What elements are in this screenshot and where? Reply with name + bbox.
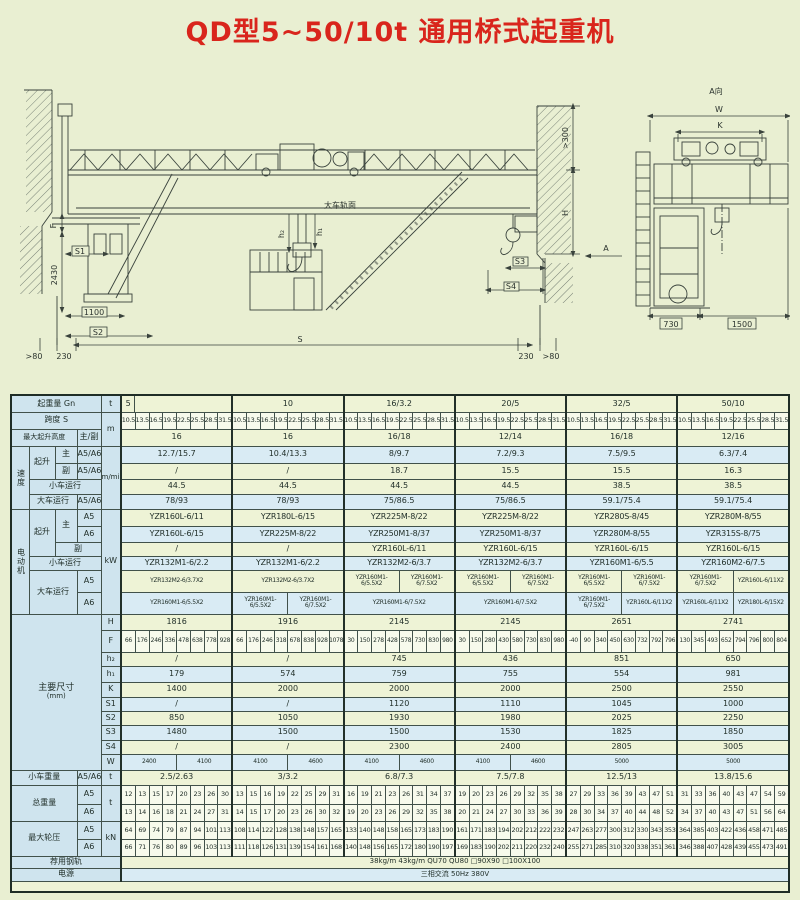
sub-cell: 800 <box>761 631 775 652</box>
value-cell: / <box>121 463 232 479</box>
end-view-dimensions <box>650 116 788 329</box>
value-cell: 7.5/7.8 <box>455 770 566 785</box>
value-cell: 1825 <box>566 725 677 740</box>
sub-cell: 422 <box>720 822 734 839</box>
sub-row: YZR160M1-6/5.5X2YZR160M1-6/7.5X2 <box>567 571 676 592</box>
row-sublabel: A6 <box>77 526 101 542</box>
sub-cell: 16.5 <box>483 413 497 429</box>
sub-row: 41004600 <box>456 755 565 770</box>
value-cell: 59.1/75.4 <box>566 494 677 509</box>
row-sublabel: A5 <box>77 785 101 804</box>
value-cell: 10.513.516.519.522.525.528.531.5 <box>677 412 789 429</box>
sub-cell: 428 <box>720 840 734 856</box>
value-cell: 1480 <box>121 725 232 740</box>
value-cell: 1816 <box>121 614 232 630</box>
sub-cell: 40 <box>622 805 636 821</box>
value-cell: 2500 <box>566 682 677 697</box>
value-cell: YZR132M1-6/2.2 <box>232 556 343 570</box>
spec-sheet-page: QD型5~50/10t 通用桥式起重机 <box>0 0 800 900</box>
sub-row: 169183190202211220232240 <box>456 840 565 856</box>
sub-cell: 240 <box>552 840 565 856</box>
value-cell: 161171183194202212222232 <box>455 821 566 839</box>
sub-cell: 111 <box>233 840 247 856</box>
sub-cell: 19.5 <box>720 413 734 429</box>
row-sublabel: A6 <box>77 839 101 856</box>
sub-cell: 25.5 <box>525 413 539 429</box>
sub-cell: 194 <box>497 822 511 839</box>
sub-row: 10.513.516.519.522.525.528.531.5 <box>345 413 454 429</box>
row-label: 起重量 Gn <box>11 395 101 412</box>
value-cell: YZR160M1-6/5.5X2YZR160M1-6/7.5X2 <box>232 592 343 614</box>
sub-cell: 246 <box>150 631 164 652</box>
unit-label: t <box>101 785 121 821</box>
sub-row: YZR132M2-6/3.7X2 <box>122 571 231 592</box>
sub-cell: 652 <box>720 631 734 652</box>
end-view-labels: A向 W K 730 1500 <box>663 86 752 329</box>
sub-cell: 4600 <box>511 755 565 770</box>
value-cell: 2741 <box>677 614 789 630</box>
value-cell: 2400 <box>455 740 566 754</box>
unit-label: t <box>101 770 121 785</box>
row-sublabel: A5 <box>77 821 101 839</box>
sub-cell: YZR160M1-6/7.5X2 <box>567 593 622 614</box>
sub-cell: 10.5 <box>678 413 692 429</box>
sub-cell: YZR160L-6/11X2 <box>734 571 788 592</box>
value-cell: YZR160M2-6/7.5 <box>677 556 789 570</box>
sub-cell: 28.5 <box>316 413 330 429</box>
sub-cell: 22.5 <box>511 413 525 429</box>
sub-row: YZR160M1-6/5.5X2YZR160M1-6/7.5X2 <box>345 571 454 592</box>
sub-cell: 29 <box>511 786 525 804</box>
value-cell: YZR160M1-6/5.5X2YZR160M1-6/7.5X2 <box>566 570 677 592</box>
value-cell: 66176246336478638778928 <box>121 630 232 652</box>
sub-cell: 31.5 <box>663 413 676 429</box>
row-label: 小车运行 <box>29 556 101 570</box>
value-cell: YZR250M1-8/37 <box>455 526 566 542</box>
sub-cell: YZR160M1-6/5.5X2 <box>233 593 288 614</box>
row-sublabel: 副 <box>55 463 77 479</box>
row-label: 荐用钢轨 <box>11 856 121 868</box>
row-sublabel: A5/A6 <box>77 494 101 509</box>
unit-label: m/min <box>101 446 121 509</box>
dim-row-label: F <box>101 630 121 652</box>
sub-cell: 22.5 <box>177 413 191 429</box>
sub-cell: 156 <box>372 840 386 856</box>
value-cell: 5 <box>121 395 135 412</box>
row-sublabel: A5/A6 <box>77 446 101 463</box>
value-cell: / <box>232 542 343 556</box>
value-cell: YZR225M-8/22 <box>344 509 455 526</box>
sub-row: YZR160M1-6/7.5X2 <box>456 593 565 614</box>
value-cell: YZR132M2-6/3.7X2 <box>232 570 343 592</box>
sub-cell: -40 <box>567 631 581 652</box>
row-sublabel: A5/A6 <box>77 770 101 785</box>
value-cell: 2250 <box>677 711 789 725</box>
sub-cell: 678 <box>288 631 302 652</box>
sub-cell: 64 <box>775 805 788 821</box>
value-cell: 130345493652794796800804 <box>677 630 789 652</box>
value-cell: 574 <box>232 666 343 682</box>
sub-cell: 190 <box>483 840 497 856</box>
sub-cell: 27 <box>205 805 219 821</box>
value-cell: 10.513.516.519.522.525.528.531.5 <box>344 412 455 429</box>
row-sublabel: A5 <box>77 570 101 592</box>
value-cell: 16 <box>232 429 343 446</box>
sub-cell: 1078 <box>330 631 343 652</box>
unit-label: m <box>101 412 121 446</box>
value-cell: 3437404347515664 <box>677 804 789 821</box>
value-cell: 1619212326313437 <box>344 785 455 804</box>
value-cell: 18.7 <box>344 463 455 479</box>
sub-cell: 17 <box>261 805 275 821</box>
value-cell: / <box>121 542 232 556</box>
dim-h2-label: h₂ <box>277 230 286 238</box>
sub-cell: 485 <box>775 822 788 839</box>
sub-cell: 318 <box>275 631 289 652</box>
sub-cell: 25.5 <box>413 413 427 429</box>
sub-row: 364385403422436458471485 <box>678 822 788 839</box>
sub-cell: 43 <box>720 805 734 821</box>
sub-row: 667176808996103113 <box>122 840 231 856</box>
value-cell: YZR160M1-6/5.5X2 <box>121 592 232 614</box>
sub-cell: 140 <box>358 822 372 839</box>
value-cell: YZR160M1-6/5.5X2YZR160M1-6/7.5X2 <box>455 570 566 592</box>
sub-cell: 16 <box>150 805 164 821</box>
sub-cell: 450 <box>608 631 622 652</box>
sub-cell: 255 <box>567 840 581 856</box>
sub-row: 1213151720232630 <box>122 786 231 804</box>
value-cell: 10.513.516.519.522.525.528.531.5 <box>566 412 677 429</box>
sub-cell: 5000 <box>678 755 788 770</box>
value-cell: 247263277300312330343353 <box>566 821 677 839</box>
dim-h2-row: h₂ / / 745 436 851 650 <box>11 652 789 666</box>
dim-S3-row: S3 1480 1500 1500 1530 1825 1850 <box>11 725 789 740</box>
sub-cell: 96 <box>191 840 205 856</box>
sub-cell: 19.5 <box>386 413 400 429</box>
value-cell: 15.5 <box>566 463 677 479</box>
sub-cell: 13 <box>233 786 247 804</box>
value-cell: 16/18 <box>566 429 677 446</box>
sub-row: 140148156165172180190197 <box>345 840 454 856</box>
dim-h1-label: h₁ <box>315 228 324 236</box>
sub-row: 255271285310320338351361 <box>567 840 676 856</box>
sub-cell: 346 <box>678 840 692 856</box>
value-cell: 3133364043475459 <box>677 785 789 804</box>
sub-cell: 27 <box>497 805 511 821</box>
value-cell: 5000 <box>677 754 789 770</box>
rail-top-label: 大车轨面 <box>324 200 356 210</box>
sub-cell: 30 <box>345 631 359 652</box>
sub-row: 346388407428439455473491 <box>678 840 788 856</box>
sub-cell: 161 <box>456 822 470 839</box>
value-cell: 7.5/9.5 <box>566 446 677 463</box>
sub-cell: 66 <box>122 631 136 652</box>
end-view-a <box>636 138 788 308</box>
motor-main-a6-row: A6 YZR160L-6/15 YZR225M-8/22 YZR250M1-8/… <box>11 526 789 542</box>
value-cell: 10.513.516.519.522.525.528.531.5 <box>232 412 343 429</box>
value-cell: 30150280430580730830980 <box>455 630 566 652</box>
sub-cell: 27 <box>567 786 581 804</box>
speed-main-hoist-row: 速度 起升 主 A5/A6 m/min 12.7/15.7 10.4/13.3 … <box>11 446 789 463</box>
sub-cell: 4100 <box>177 755 231 770</box>
sub-cell: YZR160M1-6/7.5X2 <box>622 571 676 592</box>
sub-cell: 31 <box>678 786 692 804</box>
sub-row: 661762463186788389281078 <box>233 631 342 652</box>
sub-cell: 39 <box>622 786 636 804</box>
sub-cell: 52 <box>663 805 676 821</box>
sub-cell: 4100 <box>345 755 400 770</box>
sub-cell: 10.5 <box>233 413 247 429</box>
sub-cell: 47 <box>734 805 748 821</box>
value-cell: / <box>232 697 343 711</box>
sub-cell: YZR160M1-6/5.5X2 <box>456 571 511 592</box>
sub-row: 5000 <box>567 755 676 770</box>
row-label: 电源 <box>11 868 121 881</box>
sub-cell: 578 <box>400 631 414 652</box>
sub-cell: 126 <box>261 840 275 856</box>
sub-cell: 40 <box>706 805 720 821</box>
sub-cell: 131 <box>275 840 289 856</box>
sub-row: 1920232629323538 <box>345 805 454 821</box>
footer-strip-row <box>11 881 789 892</box>
sub-cell: 212 <box>525 822 539 839</box>
sub-cell: 246 <box>261 631 275 652</box>
row-sublabel: A6 <box>77 804 101 821</box>
sub-cell: 407 <box>706 840 720 856</box>
dim-row-label: h₂ <box>101 652 121 666</box>
sub-cell: 830 <box>538 631 552 652</box>
value-cell: YZR225M-8/22 <box>455 509 566 526</box>
value-cell: 255271285310320338351361 <box>566 839 677 856</box>
value-cell: 1850 <box>677 725 789 740</box>
value-cell: YZR315S-8/75 <box>677 526 789 542</box>
value-cell: YZR280M-8/55 <box>566 526 677 542</box>
sub-cell: 19 <box>358 786 372 804</box>
sub-cell: 211 <box>511 840 525 856</box>
main-view-dimensions <box>40 106 622 351</box>
value-cell: 851 <box>566 652 677 666</box>
sub-cell: 16.5 <box>595 413 609 429</box>
row-label: 起升 <box>29 509 55 556</box>
sub-cell: 458 <box>747 822 761 839</box>
value-cell: 1000 <box>677 697 789 711</box>
value-cell: 78/93 <box>121 494 232 509</box>
sub-cell: 10.5 <box>567 413 581 429</box>
sub-cell: 32 <box>330 805 343 821</box>
sub-row: YZR160M1-6/7.5X2YZR160L-6/11X2 <box>567 593 676 614</box>
sub-cell: 37 <box>608 805 622 821</box>
row-sublabel: 副 <box>55 542 101 556</box>
row-label: 大车运行 <box>29 494 77 509</box>
value-cell: 16 <box>121 429 232 446</box>
dim-row-label: S2 <box>101 711 121 725</box>
value-cell: 20/5 <box>455 395 566 412</box>
sub-cell: 114 <box>247 822 261 839</box>
sub-cell: 66 <box>122 840 136 856</box>
sub-cell: 20 <box>358 805 372 821</box>
sub-cell: 158 <box>386 822 400 839</box>
value-cell: 667176808996103113 <box>121 839 232 856</box>
sub-row: YZR160L-6/11X2YZR180L-6/15X2 <box>678 593 788 614</box>
row-label: 大车运行 <box>29 570 77 614</box>
capacity-row: 起重量 Gn t 5 10 5 10 16/3.2 20/5 32/5 50/1… <box>11 395 789 412</box>
sub-cell: 190 <box>441 822 454 839</box>
sub-cell: 15 <box>150 786 164 804</box>
dim-h1-row: h₁ 179 574 759 755 554 981 <box>11 666 789 682</box>
sub-cell: 89 <box>177 840 191 856</box>
sub-cell: 361 <box>663 840 676 856</box>
dim-span-label: S <box>297 335 302 344</box>
sub-row: 41004600 <box>345 755 454 770</box>
sub-cell: 16.5 <box>372 413 386 429</box>
value-cell: 169183190202211220232240 <box>455 839 566 856</box>
sub-row: YZR160M1-6/7.5X2 <box>345 593 454 614</box>
sub-cell: 24 <box>483 805 497 821</box>
value-cell: 59.1/75.4 <box>677 494 789 509</box>
value-cell: 2000 <box>344 682 455 697</box>
sub-row: 108114122128138148157165 <box>233 822 342 839</box>
value-cell: 12/16 <box>677 429 789 446</box>
dim-w-label: W <box>715 105 723 114</box>
sub-cell: 310 <box>608 840 622 856</box>
value-cell: 2805 <box>566 740 677 754</box>
sub-cell: 428 <box>386 631 400 652</box>
sub-cell: 19.5 <box>497 413 511 429</box>
sub-cell: YZR160M1-6/5.5X2 <box>122 593 231 614</box>
sub-cell: 202 <box>511 822 525 839</box>
dim-row-label: S4 <box>101 740 121 754</box>
sub-cell: 19 <box>275 786 289 804</box>
sub-cell: 345 <box>692 631 706 652</box>
sub-row: 30150278428578730830980 <box>345 631 454 652</box>
sub-cell: 202 <box>497 840 511 856</box>
sub-cell: 148 <box>372 822 386 839</box>
section-label-motor: 电动机 <box>11 509 29 614</box>
sub-cell: 23 <box>386 786 400 804</box>
sub-cell: 150 <box>470 631 484 652</box>
sub-cell: 22.5 <box>400 413 414 429</box>
sub-cell: 161 <box>316 840 330 856</box>
sub-cell: 31.5 <box>330 413 343 429</box>
dim-row-label: K <box>101 682 121 697</box>
row-label: 起升 <box>29 446 55 479</box>
sub-cell: 15 <box>247 786 261 804</box>
sub-cell: 16.5 <box>706 413 720 429</box>
sub-row: 30150280430580730830980 <box>456 631 565 652</box>
sub-cell: 38 <box>552 786 565 804</box>
sub-cell: YZR160M1-6/7.5X2 <box>678 571 733 592</box>
value-cell: 15.5 <box>455 463 566 479</box>
sub-cell: 730 <box>413 631 427 652</box>
sub-cell: 792 <box>650 631 664 652</box>
value-cell: YZR280M-8/55 <box>677 509 789 526</box>
dim-1500-label: 1500 <box>732 320 752 329</box>
wheel-load-a6-row: A6 667176808996103113 111118126131139154… <box>11 839 789 856</box>
sub-cell: 183 <box>427 822 441 839</box>
sub-cell: 13.5 <box>470 413 484 429</box>
sub-row: 130345493652794796800804 <box>678 631 788 652</box>
sub-cell: 66 <box>233 631 247 652</box>
sub-cell: 2400 <box>122 755 177 770</box>
motor-bridge-a5-row: 大车运行 A5 YZR132M2-6/3.7X2 YZR132M2-6/3.7X… <box>11 570 789 592</box>
sub-cell: 351 <box>650 840 664 856</box>
sub-cell: 23 <box>288 805 302 821</box>
sub-cell: 22 <box>288 786 302 804</box>
dim-gt80-left-label: >80 <box>26 352 43 361</box>
sub-row: YZR160M1-6/7.5X2YZR160L-6/11X2 <box>678 571 788 592</box>
value-cell: 1050 <box>232 711 343 725</box>
sub-cell: 36 <box>608 786 622 804</box>
sub-cell: 21 <box>470 805 484 821</box>
sub-row: 1315161922252931 <box>233 786 342 804</box>
dim-S2-row: S2 850 1050 1930 1980 2025 2250 <box>11 711 789 725</box>
sub-cell: 101 <box>205 822 219 839</box>
sub-cell: 222 <box>538 822 552 839</box>
lift-height-row: 最大起升高度 主/副 16 16 16/18 12/14 16/18 12/16 <box>11 429 789 446</box>
sub-cell: 732 <box>636 631 650 652</box>
value-cell: 2550 <box>677 682 789 697</box>
dim-s3-label: S3 <box>515 257 525 266</box>
page-title: QD型5~50/10t 通用桥式起重机 <box>0 10 800 49</box>
trolley-weight-row: 小车重量 A5/A6 t 2.5/2.63 3/3.2 6.8/7.3 7.5/… <box>11 770 789 785</box>
sub-cell: 30 <box>316 805 330 821</box>
value-cell: 12/14 <box>455 429 566 446</box>
value-cell: 10.513.516.519.522.525.528.531.5 <box>121 412 232 429</box>
value-cell: 346388407428439455473491 <box>677 839 789 856</box>
sub-cell: 13.5 <box>581 413 595 429</box>
unit-label: t <box>101 395 121 412</box>
value-cell: 1916 <box>232 614 343 630</box>
value-cell: 8/9.7 <box>344 446 455 463</box>
motor-main-a5-row: 电动机 起升 主 A5 kW YZR160L-6/11 YZR180L-6/15… <box>11 509 789 526</box>
sub-cell: 26 <box>497 786 511 804</box>
sub-cell: YZR160M1-6/7.5X2 <box>511 571 565 592</box>
sub-cell: YZR160L-6/11X2 <box>678 593 733 614</box>
row-label: 最大轮压 <box>11 821 77 856</box>
value-cell: 2830343740444852 <box>566 804 677 821</box>
value-cell: / <box>121 740 232 754</box>
sub-cell: 36 <box>538 805 552 821</box>
value-cell: YZR160L-6/15 <box>566 542 677 556</box>
value-cell: 12.7/15.7 <box>121 446 232 463</box>
sub-row: 41004600 <box>233 755 342 770</box>
sub-row: YZR132M2-6/3.7X2 <box>233 571 342 592</box>
value-cell: 50/10 <box>677 395 789 412</box>
value-cell: 13.8/15.6 <box>677 770 789 785</box>
total-weight-a6-row: A6 1314161821242731 1415172023263032 192… <box>11 804 789 821</box>
sub-cell: 796 <box>747 631 761 652</box>
motor-bridge-a6-row: A6 YZR160M1-6/5.5X2 YZR160M1-6/5.5X2YZR1… <box>11 592 789 614</box>
sub-cell: 26 <box>400 786 414 804</box>
value-cell: 2300 <box>344 740 455 754</box>
value-cell: YZR280S-8/45 <box>566 509 677 526</box>
sub-cell: 19.5 <box>163 413 177 429</box>
speed-trolley-row: 小车运行 44.5 44.5 44.5 44.5 38.5 38.5 <box>11 479 789 494</box>
row-sublabel: A5 <box>77 509 101 526</box>
value-cell: 44.5 <box>121 479 232 494</box>
sub-cell: 74 <box>150 822 164 839</box>
sub-cell: 31.5 <box>775 413 788 429</box>
sub-cell: 13 <box>136 786 150 804</box>
value-cell: 1045 <box>566 697 677 711</box>
sub-cell: 31 <box>330 786 343 804</box>
row-sublabel: 主 <box>55 446 77 463</box>
sub-row: 2830343740444852 <box>567 805 676 821</box>
value-cell: 38.5 <box>677 479 789 494</box>
sub-cell: YZR160M1-6/7.5X2 <box>288 593 342 614</box>
value-cell: 1500 <box>232 725 343 740</box>
sub-row: 2021242730333639 <box>456 805 565 821</box>
